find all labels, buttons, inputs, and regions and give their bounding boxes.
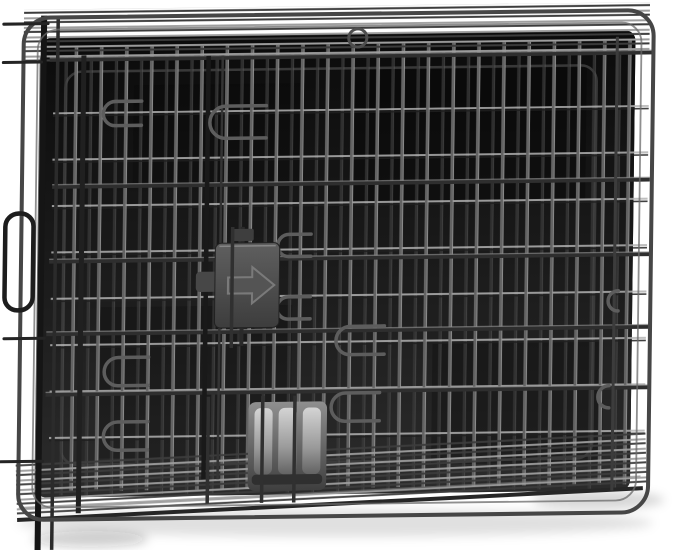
latch-top-tab (232, 229, 254, 241)
folded-wire-crate (0, 2, 654, 550)
product-photo: Black folded metal wire dog crate (colla… (0, 0, 679, 550)
wire-grid-front (60, 40, 653, 491)
tray-handle (248, 401, 328, 491)
latch-top-highlight (219, 246, 275, 247)
crate-photo-canvas (0, 0, 679, 550)
tray-handle-ridge (302, 407, 321, 474)
